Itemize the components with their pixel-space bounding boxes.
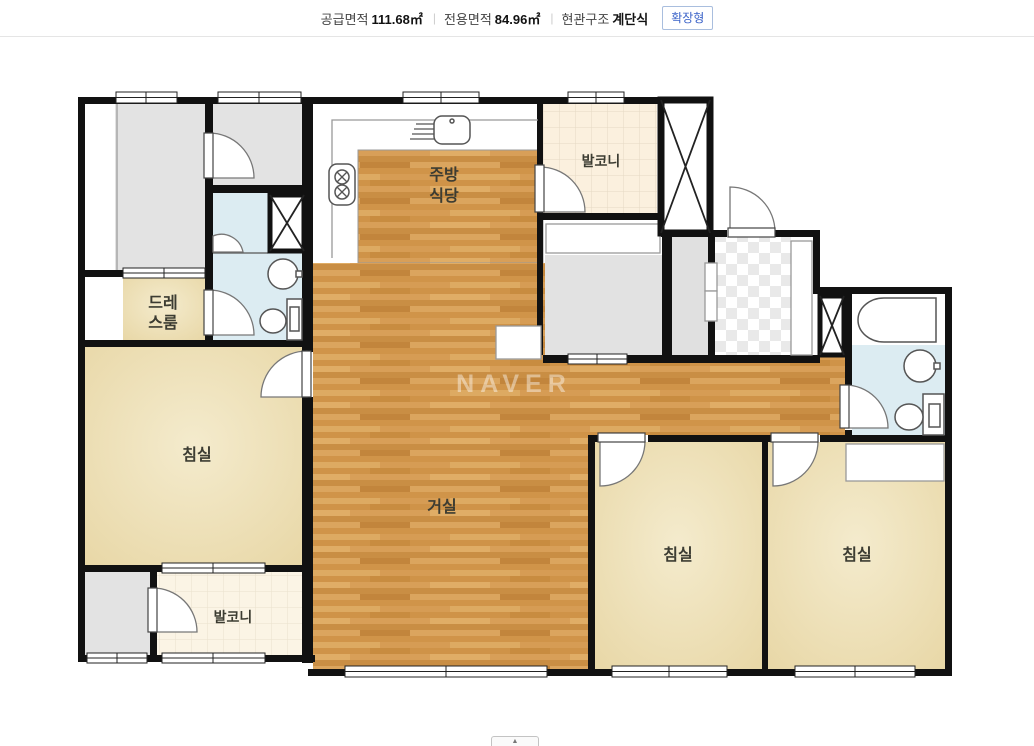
- hallway-floor: [543, 363, 845, 435]
- expand-type-button[interactable]: 확장형: [662, 6, 713, 30]
- door-leaf: [771, 433, 818, 442]
- door-leaf: [204, 133, 213, 178]
- door-frame: [705, 263, 717, 291]
- dressroom-label: 드레: [148, 294, 177, 312]
- balcony-bottom-label: 발코니: [214, 609, 253, 625]
- naver-watermark: NAVER: [456, 370, 572, 398]
- wardrobe: [546, 224, 660, 253]
- kitchen-label: 식당: [429, 187, 459, 205]
- supply-area-label: 공급면적: [321, 9, 369, 28]
- kitchen-label: 주방: [429, 166, 459, 184]
- closet-x-icon: [661, 100, 710, 233]
- door-leaf: [598, 433, 645, 442]
- door-leaf: [204, 290, 213, 335]
- bedroom-right-closet: [846, 444, 944, 481]
- up-arrow-icon: ▲: [512, 737, 519, 746]
- window: [795, 666, 915, 677]
- entrance-type-label: 현관구조: [561, 9, 609, 28]
- entry-side-strip: [672, 237, 708, 355]
- supply-area-value: 111.68㎡: [372, 9, 423, 28]
- dressroom-label: 스룸: [148, 314, 178, 332]
- window: [612, 666, 727, 677]
- window: [123, 268, 205, 278]
- window: [162, 563, 265, 573]
- door-frame: [705, 291, 717, 321]
- window: [87, 653, 147, 663]
- storage-floor: [85, 572, 150, 655]
- middle-room-floor: [545, 255, 662, 355]
- front-door-leaf: [728, 228, 775, 237]
- door-leaf: [840, 385, 849, 428]
- balcony-top-label: 발코니: [582, 153, 621, 169]
- bedroom-right-label: 침실: [842, 545, 871, 564]
- window: [116, 92, 177, 103]
- bathtub-icon: [858, 298, 936, 342]
- exclusive-area-label: 전용면적: [444, 9, 492, 28]
- bedroom-left-label: 침실: [182, 445, 211, 464]
- exclusive-area-value: 84.96㎡: [495, 9, 541, 28]
- dish-rack-icon: [410, 124, 434, 139]
- bedroom-mid-label: 침실: [663, 545, 692, 564]
- window: [568, 92, 624, 103]
- window: [162, 653, 265, 663]
- hall-cabinet: [496, 326, 541, 359]
- collapse-button[interactable]: ▲: [491, 736, 539, 746]
- window: [568, 354, 627, 364]
- closet-x-icon: [820, 296, 844, 355]
- window: [218, 92, 301, 103]
- window: [345, 666, 547, 677]
- separator: |: [433, 11, 436, 25]
- window: [403, 92, 479, 103]
- entry-floor: [715, 237, 791, 356]
- living-room-label: 거실: [427, 498, 456, 516]
- area-info-bar: 공급면적 111.68㎡ | 전용면적 84.96㎡ | 현관구조 계단식 확장…: [0, 0, 1034, 37]
- page: 공급면적 111.68㎡ | 전용면적 84.96㎡ | 현관구조 계단식 확장…: [0, 0, 1034, 746]
- door-leaf: [148, 588, 157, 632]
- sink-icon: [434, 116, 470, 144]
- stove-icon: [329, 164, 355, 205]
- entrance-type-value: 계단식: [612, 9, 648, 28]
- closet-strip: [85, 104, 115, 270]
- front-door-swing: [730, 187, 775, 232]
- door-leaf: [302, 351, 311, 397]
- separator: |: [550, 11, 553, 25]
- shoe-cabinet: [791, 241, 812, 355]
- floorplan: 주방 식당 발코니 드레 스룸 침실 거실 발코니 침실 침실 NAVER: [0, 0, 1034, 746]
- closet-x-icon: [270, 195, 304, 251]
- door-leaf: [535, 165, 544, 212]
